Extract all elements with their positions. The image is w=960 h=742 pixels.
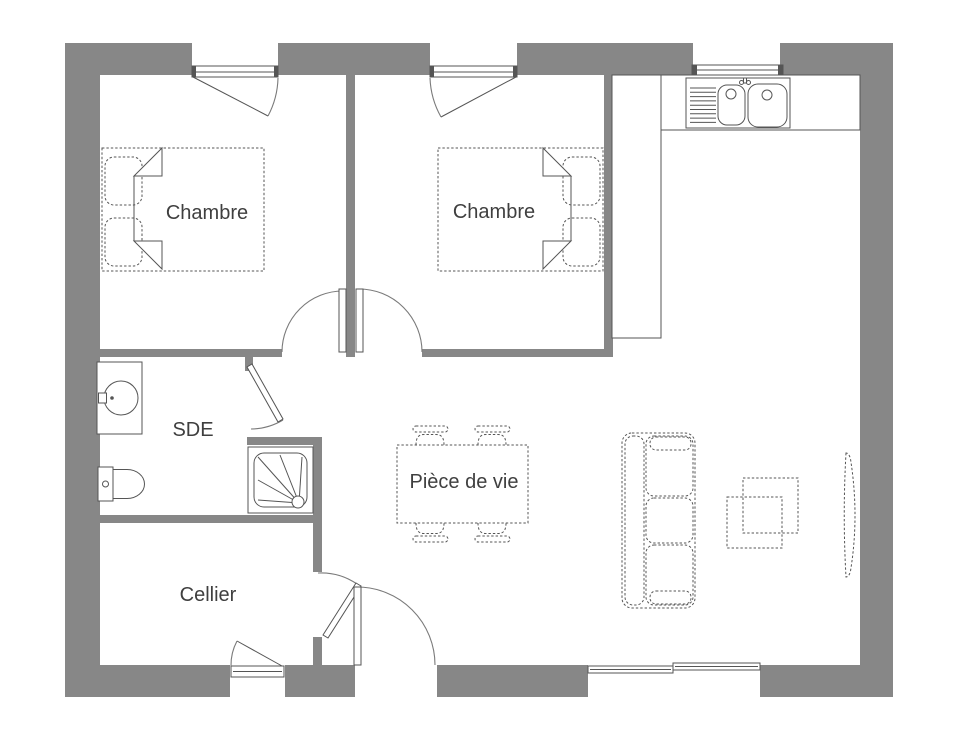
room-label-piece-de-vie: Pièce de vie bbox=[410, 471, 519, 493]
room-label-cellier: Cellier bbox=[180, 584, 237, 606]
tv-symbol bbox=[844, 453, 855, 577]
room-label-chambre-1: Chambre bbox=[166, 202, 248, 224]
window-swing-arc bbox=[268, 78, 278, 116]
window-leaf bbox=[441, 77, 516, 117]
shower-drain bbox=[292, 496, 304, 508]
door-leaf bbox=[356, 289, 363, 352]
window-chambre-2 bbox=[430, 66, 517, 117]
wall-bottom-segment-1 bbox=[65, 665, 230, 697]
wall-top-segment-4 bbox=[780, 43, 893, 75]
dining-chair bbox=[475, 523, 510, 542]
basin-tap bbox=[99, 393, 107, 403]
wall-shower-cellier-right bbox=[313, 437, 322, 572]
door-chambre-1 bbox=[282, 289, 346, 352]
dining-chair bbox=[413, 426, 448, 445]
door-entrance bbox=[354, 587, 435, 665]
door-sde bbox=[247, 364, 283, 429]
wall-bedrooms-bottom-left bbox=[100, 349, 282, 357]
basin-bowl bbox=[104, 381, 138, 415]
toilet-tank bbox=[98, 467, 113, 501]
wall-bottom-segment-4 bbox=[760, 665, 893, 697]
bed-pillow bbox=[105, 157, 142, 205]
dining-chair bbox=[413, 523, 448, 542]
door-leaf bbox=[247, 364, 283, 422]
kitchen-cabinet bbox=[612, 75, 661, 338]
wall-top-segment-2 bbox=[278, 43, 430, 75]
wall-between-bedrooms bbox=[346, 75, 355, 357]
window-swing-arc bbox=[430, 78, 441, 117]
bay-window-living-room bbox=[588, 663, 760, 673]
sink-bowl-left bbox=[718, 85, 745, 125]
bed-pillow bbox=[563, 157, 600, 205]
door-leaf bbox=[354, 587, 361, 665]
wall-top-segment-1 bbox=[65, 43, 192, 75]
kitchen-sink bbox=[686, 78, 790, 128]
wall-bottom-segment-2 bbox=[285, 665, 355, 697]
toilet-symbol bbox=[98, 467, 145, 501]
shower-symbol bbox=[248, 447, 313, 513]
coffee-table bbox=[743, 478, 798, 533]
coffee-tables-symbol bbox=[727, 478, 798, 548]
sofa-outline bbox=[622, 433, 695, 608]
wall-left bbox=[65, 43, 100, 697]
sofa-symbol bbox=[622, 433, 695, 608]
door-swing-arc bbox=[357, 587, 435, 665]
toilet-bowl bbox=[113, 470, 145, 499]
wall-bottom-segment-3 bbox=[437, 665, 588, 697]
room-label-chambre-2: Chambre bbox=[453, 201, 535, 223]
wall-right bbox=[860, 43, 893, 697]
window-cellier bbox=[231, 641, 284, 677]
coffee-table bbox=[727, 497, 782, 548]
wall-cellier-door-stub bbox=[313, 637, 322, 665]
door-swing-arc bbox=[359, 289, 422, 352]
wall-bedrooms-bottom-right bbox=[422, 349, 613, 357]
door-chambre-2 bbox=[356, 289, 422, 352]
door-swing-arc bbox=[282, 291, 343, 352]
floor-plan: Chambre Chambre SDE Cellier Pièce de vie bbox=[0, 0, 960, 742]
washbasin-symbol bbox=[97, 362, 142, 434]
window-chambre-1 bbox=[192, 66, 278, 116]
wall-top-segment-3 bbox=[517, 43, 693, 75]
window-swing-arc bbox=[231, 641, 237, 666]
room-label-sde: SDE bbox=[172, 419, 213, 441]
window-leaf bbox=[193, 77, 268, 116]
wall-sde-cellier bbox=[100, 515, 322, 523]
window-leaf bbox=[237, 641, 282, 666]
wall-shower-top bbox=[247, 437, 322, 445]
dining-chair bbox=[475, 426, 510, 445]
door-swing-arc bbox=[318, 573, 357, 584]
door-leaf bbox=[339, 289, 346, 352]
